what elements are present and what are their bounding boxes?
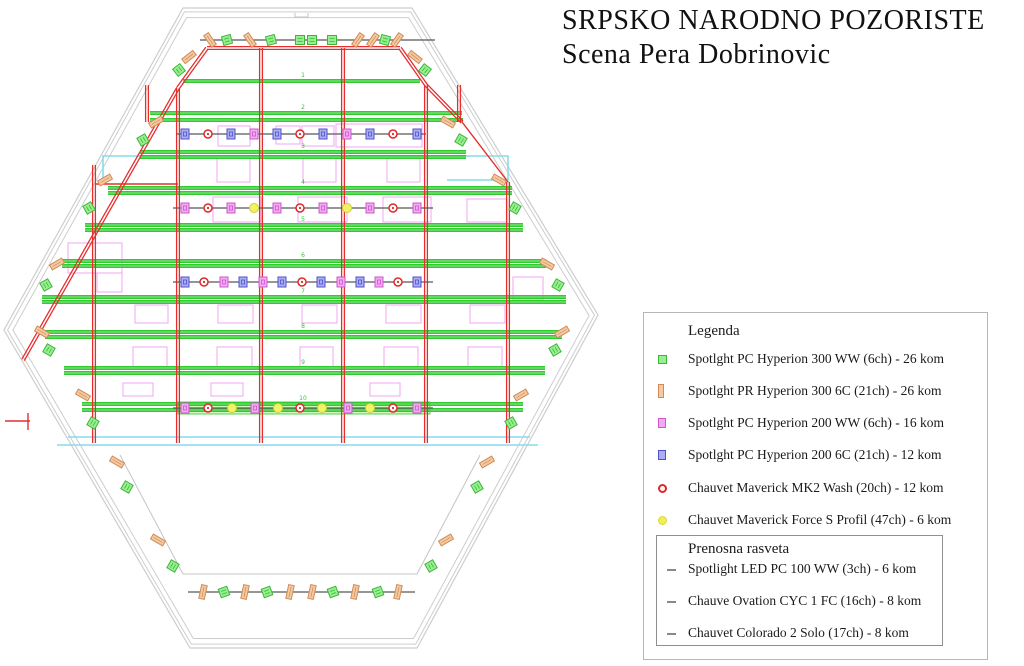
- dash-icon: [667, 601, 676, 603]
- page-title: SRPSKO NARODNO POZORISTE Scena Pera Dobr…: [562, 4, 1022, 72]
- maverick-mk2-wash-icon: [658, 484, 667, 493]
- lighting-plot-page: 12345678910 SRPSKO NARODNO POZORISTE Sce…: [0, 0, 1024, 666]
- maverick-force-s-icon: [658, 516, 667, 525]
- pc-hyperion-200-6c-icon: [658, 450, 666, 460]
- legend-item-label: Spotlght PC Hyperion 300 WW (6ch) - 26 k…: [688, 351, 944, 367]
- portable-legend-box: Prenosna rasveta Spotlight LED PC 100 WW…: [656, 535, 943, 646]
- portable-item-label: Spotlight LED PC 100 WW (3ch) - 6 kom: [688, 561, 916, 577]
- portable-item: Spotlight LED PC 100 WW (3ch) - 6 kom: [667, 559, 916, 579]
- dash-icon: [667, 569, 676, 571]
- legend-title: Legenda: [688, 323, 740, 340]
- legend-item-label: Spotlght PC Hyperion 200 WW (6ch) - 16 k…: [688, 415, 944, 431]
- legend-item: Spotlght PC Hyperion 200 6C (21ch) - 12 …: [658, 445, 942, 465]
- stage-name: Scena Pera Dobrinovic: [562, 38, 1022, 72]
- svg-text:1: 1: [301, 72, 305, 79]
- portable-item: Chauve Ovation CYC 1 FC (16ch) - 8 kom: [667, 591, 921, 611]
- red-structure: [5, 47, 509, 443]
- legend-item-label: Spotlght PC Hyperion 200 6C (21ch) - 12 …: [688, 447, 942, 463]
- svg-text:2: 2: [301, 104, 305, 111]
- svg-text:3: 3: [301, 143, 305, 150]
- svg-text:9: 9: [301, 359, 305, 366]
- legend-item: Spotlght PR Hyperion 300 6C (21ch) - 26 …: [658, 381, 942, 401]
- legend-item-label: Chauvet Maverick Force S Profil (47ch) -…: [688, 512, 951, 528]
- theatre-name: SRPSKO NARODNO POZORISTE: [562, 4, 1022, 38]
- svg-text:6: 6: [301, 252, 305, 259]
- pr-hyperion-300-6c-icon: [658, 384, 664, 398]
- pc-hyperion-200ww-icon: [658, 418, 666, 428]
- portable-legend-title: Prenosna rasveta: [688, 541, 789, 558]
- portable-item-label: Chauvet Colorado 2 Solo (17ch) - 8 kom: [688, 625, 909, 641]
- portable-item: Chauvet Colorado 2 Solo (17ch) - 8 kom: [667, 623, 909, 643]
- portable-item-label: Chauve Ovation CYC 1 FC (16ch) - 8 kom: [688, 593, 921, 609]
- svg-text:7: 7: [301, 288, 305, 295]
- svg-text:8: 8: [301, 323, 305, 330]
- fixture-bars: [173, 40, 435, 592]
- svg-text:4: 4: [301, 179, 305, 186]
- legend-item-label: Spotlght PR Hyperion 300 6C (21ch) - 26 …: [688, 383, 942, 399]
- legend-item: Spotlght PC Hyperion 200 WW (6ch) - 16 k…: [658, 413, 944, 433]
- svg-text:5: 5: [301, 216, 305, 223]
- legend-item-label: Chauvet Maverick MK2 Wash (20ch) - 12 ko…: [688, 480, 944, 496]
- dash-icon: [667, 633, 676, 635]
- pc-hyperion-300ww-icon: [658, 355, 667, 364]
- legend-item: Spotlght PC Hyperion 300 WW (6ch) - 26 k…: [658, 349, 944, 369]
- legend-item: Chauvet Maverick Force S Profil (47ch) -…: [658, 510, 951, 530]
- legend-item: Chauvet Maverick MK2 Wash (20ch) - 12 ko…: [658, 478, 944, 498]
- svg-text:10: 10: [299, 395, 307, 402]
